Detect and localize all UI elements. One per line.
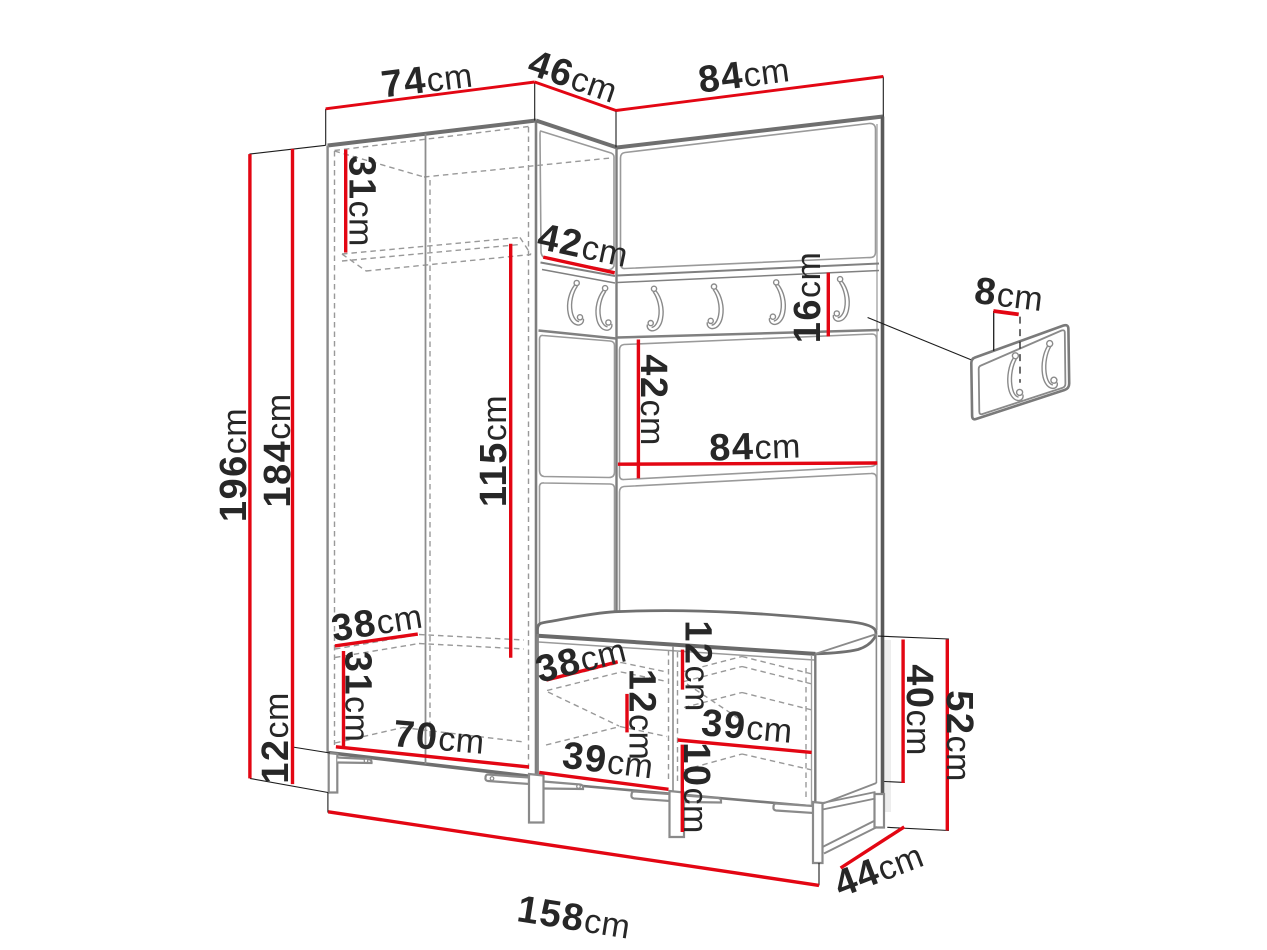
svg-text:52cm: 52cm — [938, 690, 980, 782]
svg-text:31cm: 31cm — [341, 155, 383, 247]
svg-text:84cm: 84cm — [708, 424, 801, 469]
svg-text:12cm: 12cm — [677, 620, 719, 712]
svg-text:184cm: 184cm — [257, 393, 299, 507]
svg-text:40cm: 40cm — [898, 664, 940, 756]
svg-text:42cm: 42cm — [632, 354, 674, 446]
svg-text:16cm: 16cm — [787, 252, 829, 344]
svg-text:12cm: 12cm — [255, 692, 297, 784]
svg-text:115cm: 115cm — [473, 395, 515, 507]
svg-text:10cm: 10cm — [675, 742, 717, 834]
svg-text:196cm: 196cm — [213, 408, 255, 522]
svg-text:31cm: 31cm — [337, 651, 379, 743]
